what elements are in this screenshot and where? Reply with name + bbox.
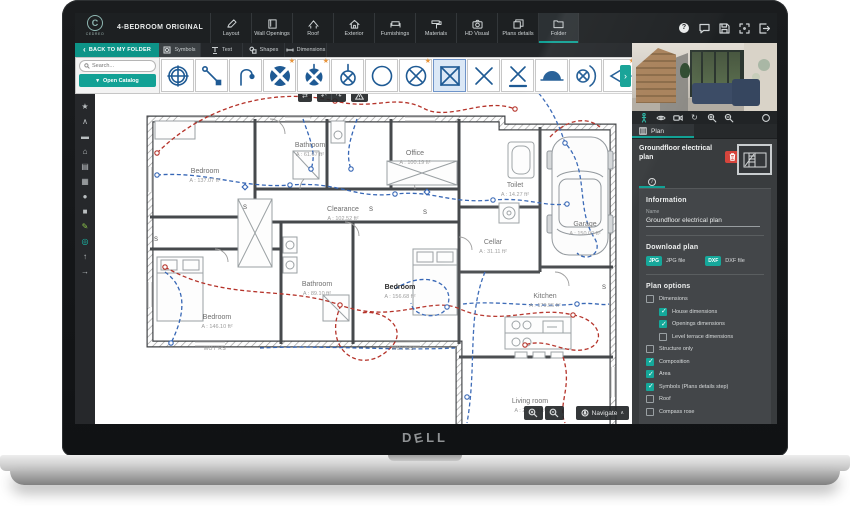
tab-shapes[interactable]: Shapes [243, 43, 285, 57]
house-icon [349, 19, 360, 29]
svg-text:A : 137.07 ft²: A : 137.07 ft² [189, 178, 220, 184]
ring-icon [761, 113, 771, 123]
symbol-arc-cable[interactable] [229, 59, 262, 92]
info-icon: i [648, 178, 656, 186]
jpg-badge: JPG [646, 256, 662, 266]
zoom-in-icon [707, 113, 717, 123]
switch-marker: S [602, 285, 606, 291]
paint-roller-icon [431, 19, 442, 29]
text-icon [211, 46, 219, 54]
room-label: Bedroom [203, 314, 232, 321]
svg-text:A : 146.10 ft²: A : 146.10 ft² [201, 324, 232, 330]
plan-options-heading: Plan options [646, 283, 764, 290]
tab-text[interactable]: Text [201, 43, 243, 57]
dell-logo: DELL [62, 430, 788, 445]
plan-panel-body: Groundfloor electrical plan i [632, 139, 777, 424]
svg-text:A : 179.55 ft²: A : 179.55 ft² [529, 303, 560, 309]
tab-exterior[interactable]: Exterior [333, 13, 374, 43]
option-house-dimensions[interactable]: House dimensions [659, 308, 764, 316]
symbol-half-dome-light[interactable] [535, 59, 568, 92]
sofa-icon [390, 19, 401, 29]
option-structure-only[interactable]: Structure only [646, 345, 764, 353]
rail-pointer-icon[interactable]: → [78, 266, 92, 277]
laptop-base [0, 455, 850, 471]
preview-settings-button[interactable] [760, 112, 771, 123]
tab-roof[interactable]: Roof [292, 13, 333, 43]
tools-bar: ‹ BACK TO MY FOLDER Symbols Text Shapes [75, 43, 632, 57]
option-openings-dimensions[interactable]: Openings dimensions [659, 320, 764, 328]
search-icon [84, 63, 90, 69]
favorite-star-icon: ★ [323, 58, 329, 65]
zoom-out-button[interactable] [545, 406, 564, 420]
switch-marker: S [423, 210, 427, 216]
rail-electrical-icon[interactable]: ◎ [78, 236, 92, 247]
tab-plans-details[interactable]: Plans details [497, 13, 538, 43]
switch-marker: S [243, 205, 247, 211]
strip-scroll-right-button[interactable]: › [620, 65, 631, 87]
roof-icon [308, 19, 319, 29]
favorite-star-icon: ★ [289, 58, 295, 65]
exit-icon [759, 23, 770, 34]
checkbox-icon [646, 295, 654, 303]
back-to-folder-button[interactable]: ‹ BACK TO MY FOLDER [75, 43, 159, 57]
room-label: Office [406, 150, 424, 157]
tab-symbols[interactable]: Symbols [159, 43, 201, 57]
checkbox-icon [646, 358, 654, 366]
divider [646, 274, 764, 275]
video-icon [673, 113, 683, 123]
symbol-cross-marker[interactable] [467, 59, 500, 92]
walk-icon [639, 113, 649, 123]
symbol-catalog: ▾ Open Catalog [75, 57, 160, 94]
symbol-target-light[interactable] [161, 59, 194, 92]
switch-marker: S [369, 207, 373, 213]
room-label-selected: Bedroom [385, 284, 416, 291]
wall-label: MOT RS [392, 346, 415, 352]
pencil-icon [226, 19, 237, 29]
search-box[interactable] [79, 60, 156, 72]
symbol-strip: ★ ★ ★ [160, 57, 632, 94]
project-title: 4-BEDROOM ORIGINAL [117, 24, 203, 31]
rail-exterior-icon[interactable]: ⌂ [78, 146, 92, 157]
help-icon: ? [679, 23, 689, 33]
panel-tab-bar: Plan [632, 124, 777, 139]
checkbox-icon [646, 383, 654, 391]
favorite-star-icon: ★ [425, 58, 431, 65]
checkbox-icon [659, 308, 667, 316]
zoom-out-icon [724, 113, 734, 123]
download-heading: Download plan [646, 244, 764, 251]
download-row: JPG JPG file DXF DXF file [646, 256, 764, 266]
help-button[interactable]: ? [678, 22, 690, 34]
rail-appliances-icon[interactable]: ■ [78, 206, 92, 217]
information-heading: Information [646, 197, 764, 204]
rail-kitchen-icon[interactable]: ▦ [78, 176, 92, 187]
ruler-icon [286, 46, 294, 54]
back-chevron-icon: ‹ [83, 46, 86, 54]
sheets-icon [513, 19, 524, 29]
rail-seating-icon[interactable]: ▬ [78, 131, 92, 142]
symbol-wiring-run[interactable] [195, 59, 228, 92]
room-label: Bedroom [191, 168, 220, 175]
svg-text:A : 89.10 ft²: A : 89.10 ft² [303, 291, 331, 297]
option-level-terrace-dimensions[interactable]: Level terrace dimensions [659, 333, 764, 341]
trash-icon [729, 153, 736, 161]
symbol-ceiling-lamp-stem[interactable] [331, 59, 364, 92]
option-area[interactable]: Area [646, 370, 764, 378]
tab-wall-openings[interactable]: Wall Openings [251, 13, 292, 43]
checkbox-icon [646, 408, 654, 416]
tab-furnishings[interactable]: Furnishings [374, 13, 415, 43]
checkbox-icon [659, 320, 667, 328]
refresh-icon: ↻ [691, 113, 698, 122]
fullscreen-button[interactable] [738, 22, 750, 34]
option-composition[interactable]: Composition [646, 358, 764, 366]
preview-plant [680, 63, 690, 78]
divider [646, 235, 764, 236]
checkbox-icon [646, 395, 654, 403]
room-label: Clearance [327, 206, 359, 213]
compass-icon [581, 409, 589, 417]
tab-folder[interactable]: Folder [538, 13, 579, 43]
tab-materials[interactable]: Materials [415, 13, 456, 43]
room-label: Toilet [507, 182, 523, 189]
fullscreen-icon [739, 23, 750, 34]
main-tabs: Layout Wall Openings Roof Exterior [210, 13, 579, 43]
dxf-badge: DXF [705, 256, 721, 266]
room-label: Bathroom [295, 142, 326, 149]
3d-preview[interactable] [632, 43, 777, 111]
preview-zoom-in-button[interactable] [706, 112, 717, 123]
room-label: Bathroom [302, 281, 333, 288]
symbol-junction-quad-small[interactable]: ★ [297, 59, 330, 92]
option-dimensions[interactable]: Dimensions [646, 295, 764, 303]
tab-plan[interactable]: Plan [632, 124, 694, 138]
view-navigation: Navigate ∧ [524, 406, 629, 420]
name-label: Name [646, 209, 764, 215]
checkbox-icon [646, 345, 654, 353]
cedreo-logo-text: CEDREO [80, 32, 110, 36]
chevron-down-icon: ▾ [96, 78, 99, 84]
garage-car [547, 137, 613, 255]
plan-name-field[interactable]: Groundfloor electrical plan [646, 217, 760, 227]
symbol-cross-underlined[interactable] [501, 59, 534, 92]
info-tab-bar: i [639, 175, 771, 189]
rail-storage-icon[interactable]: ▤ [78, 161, 92, 172]
preview-staircase [636, 48, 676, 103]
svg-text:A : 156.68 ft²: A : 156.68 ft² [384, 294, 415, 300]
symbol-recessed-light[interactable]: ★ [399, 59, 432, 92]
view-button[interactable] [655, 112, 666, 123]
chevron-up-icon: ∧ [620, 410, 624, 416]
camera-icon [472, 19, 483, 29]
symbol-junction-quad-large[interactable]: ★ [263, 59, 296, 92]
rail-draw-icon[interactable]: ✎ [78, 221, 92, 232]
laptop-notch [388, 455, 462, 461]
zoom-in-icon [528, 408, 538, 418]
symbol-outlet-circle[interactable] [365, 59, 398, 92]
checkbox-icon [659, 333, 667, 341]
tab-layout[interactable]: Layout [210, 13, 251, 43]
navigate-button[interactable]: Navigate ∧ [576, 406, 629, 420]
preview-zoom-out-button[interactable] [723, 112, 734, 123]
chat-button[interactable] [698, 22, 710, 34]
save-button[interactable] [718, 22, 730, 34]
svg-text:A : 100.19 ft²: A : 100.19 ft² [399, 160, 430, 166]
viewer-toolbar: ↻ [632, 111, 777, 124]
search-input[interactable] [92, 63, 151, 69]
top-bar: C CEDREO 4-BEDROOM ORIGINAL Layout Wall … [75, 13, 777, 43]
plan-thumbnail[interactable] [737, 144, 772, 175]
top-actions: ? [678, 13, 770, 43]
preview-sofa-chaise [732, 79, 760, 106]
save-icon [719, 23, 730, 34]
symbol-box-cross[interactable] [433, 59, 466, 92]
folder-icon [553, 19, 564, 29]
rail-favorites-icon[interactable]: ★ [78, 101, 92, 112]
option-symbols[interactable]: Symbols (Plans details step) [646, 383, 764, 391]
map-icon [639, 127, 647, 135]
wall-label: MOT RS [204, 346, 227, 352]
laptop-bezel: C CEDREO 4-BEDROOM ORIGINAL Layout Wall … [62, 0, 788, 456]
tab-dimensions[interactable]: Dimensions [285, 43, 327, 57]
shapes-icon [249, 46, 257, 54]
rail-collapse-icon[interactable]: ∧ [78, 116, 92, 127]
snapshot-button[interactable] [672, 112, 683, 123]
logout-button[interactable] [758, 22, 770, 34]
svg-text:A : 14.27 ft²: A : 14.27 ft² [501, 192, 529, 198]
room-label: Living room [512, 398, 548, 405]
laptop: C CEDREO 4-BEDROOM ORIGINAL Layout Wall … [0, 0, 850, 506]
refresh-view-button[interactable]: ↻ [689, 112, 700, 123]
symbol-wall-lamp[interactable] [569, 59, 602, 92]
option-compass-rose[interactable]: Compass rose [646, 408, 764, 416]
floorplan-canvas[interactable]: Bedroom A : 137.07 ft² Bathroom A : 61.6… [95, 57, 632, 424]
eye-icon [656, 113, 666, 123]
category-rail: ★ ∧ ▬ ⌂ ▤ ▦ ● ■ ✎ ◎ ↑ → [75, 94, 95, 424]
option-roof[interactable]: Roof [646, 395, 764, 403]
rail-lighting-icon[interactable]: ↑ [78, 251, 92, 262]
stairs-plan-icon [743, 150, 767, 170]
app-window: C CEDREO 4-BEDROOM ORIGINAL Layout Wall … [75, 13, 777, 424]
svg-text:A : 102.52 ft²: A : 102.52 ft² [327, 216, 358, 222]
zoom-out-icon [549, 408, 559, 418]
preview-wall-decor [758, 59, 770, 71]
rail-decoration-icon[interactable]: ● [78, 191, 92, 202]
tab-hd-visual[interactable]: HD Visual [456, 13, 497, 43]
chat-icon [699, 23, 710, 34]
svg-text:A : 150.00 ft²: A : 150.00 ft² [569, 231, 600, 237]
tab-information[interactable]: i [639, 175, 665, 188]
zoom-in-button[interactable] [524, 406, 543, 420]
floorplan-svg[interactable]: Bedroom A : 137.07 ft² Bathroom A : 61.6… [95, 57, 632, 424]
room-label: Garage [573, 221, 596, 228]
room-label: Kitchen [533, 293, 556, 300]
svg-text:A : 61.67 ft²: A : 61.67 ft² [296, 152, 324, 158]
checkbox-icon [646, 370, 654, 378]
app-logo: C CEDREO [80, 15, 110, 36]
door-icon [267, 19, 278, 29]
cedreo-logo-icon: C [87, 15, 103, 31]
stamp-icon [163, 46, 171, 54]
plan-title: Groundfloor electrical plan [639, 145, 721, 163]
plan-info-card: Information Name Groundfloor electrical … [639, 189, 771, 424]
room-label: Cellar [484, 239, 503, 246]
right-panel: ↻ Plan Groundfloor electrical plan [632, 43, 777, 424]
switch-marker: S [154, 237, 158, 243]
download-dxf-button[interactable]: DXF DXF file [705, 256, 745, 266]
laptop-base-bottom [10, 471, 840, 485]
svg-text:A : 31.11 ft²: A : 31.11 ft² [479, 249, 507, 255]
download-jpg-button[interactable]: JPG JPG file [646, 256, 685, 266]
open-catalog-button[interactable]: ▾ Open Catalog [79, 74, 156, 87]
walkthrough-button[interactable] [638, 112, 649, 123]
